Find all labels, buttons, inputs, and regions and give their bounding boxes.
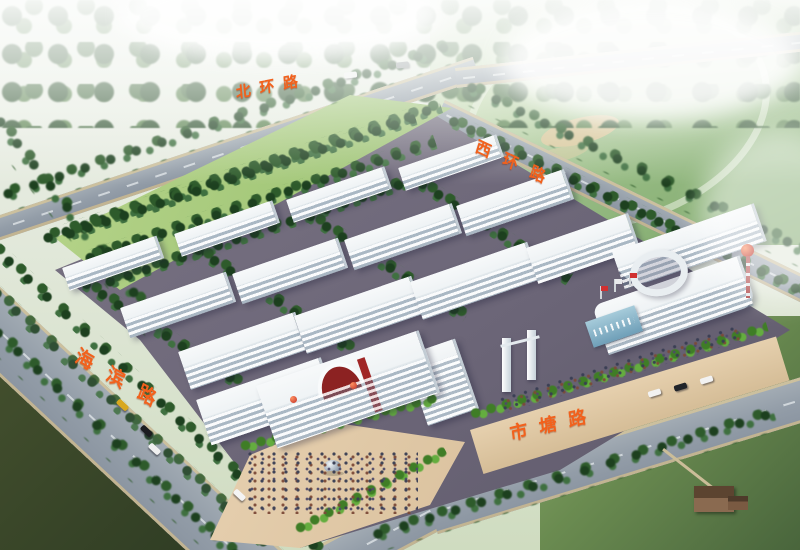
flag-icon — [614, 279, 616, 292]
flag-icon — [600, 286, 602, 299]
flag-icon — [629, 273, 631, 286]
advertising-balloon-icon — [741, 244, 754, 257]
farm-house — [694, 480, 750, 516]
decorative-balloon-icon — [350, 382, 357, 389]
aerial-rendering-scene: 北环路 西环路 海滨路 市塘路 — [0, 0, 800, 550]
decorative-balloon-icon — [290, 396, 297, 403]
red-feature-wall — [357, 357, 383, 413]
crowd-of-people — [248, 452, 418, 514]
